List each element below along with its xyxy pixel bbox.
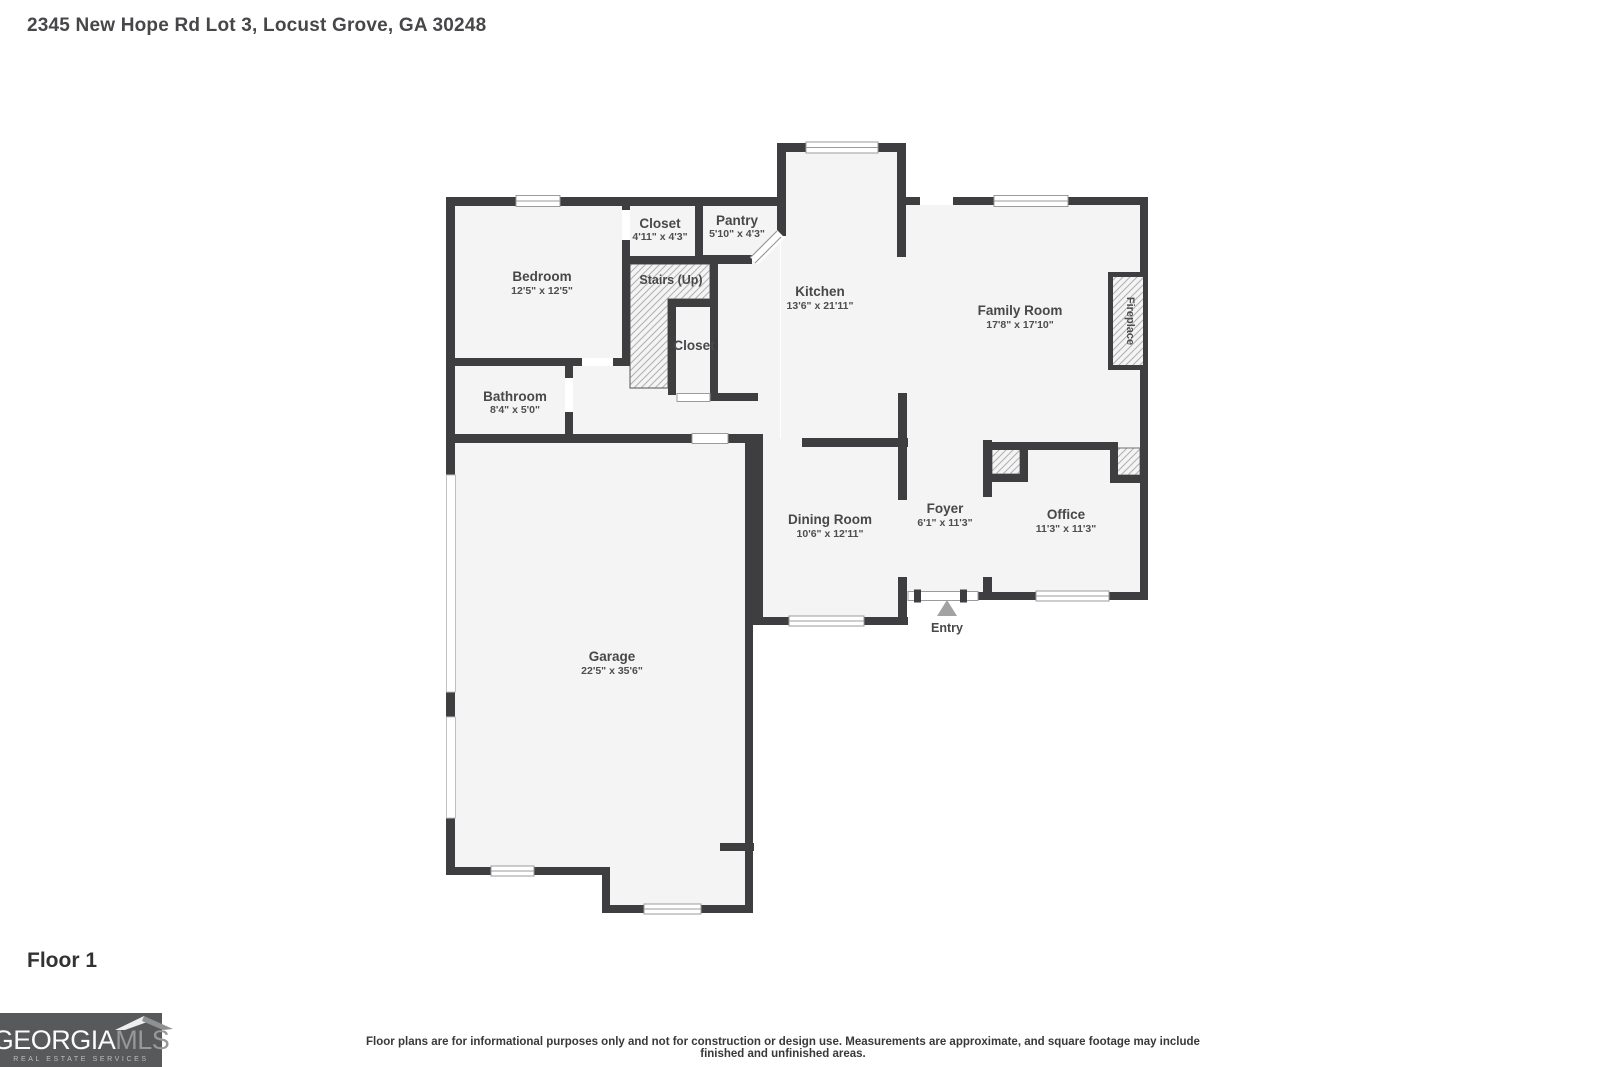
foyer-closet-hatch <box>992 448 1020 474</box>
closet-top-label: Closet <box>639 216 681 231</box>
office-label: Office <box>1047 507 1086 522</box>
dining-room-label: Dining Room <box>788 512 872 527</box>
logo-text-georgia: GEORGIA <box>0 1025 115 1055</box>
roof-icon <box>115 1016 173 1030</box>
bedroom-dims: 12'5" x 12'5" <box>511 285 573 297</box>
pantry-label: Pantry <box>716 213 759 228</box>
family-room-label: Family Room <box>978 303 1063 318</box>
closet-top-dims: 4'11" x 4'3" <box>632 231 687 243</box>
floor-plan-page: 2345 New Hope Rd Lot 3, Locust Grove, GA… <box>0 0 1600 1067</box>
closet-door-sill <box>677 394 710 402</box>
pantry-dims: 5'10" x 4'3" <box>709 228 765 240</box>
dining-window <box>789 616 864 626</box>
family-room-window <box>994 196 1068 207</box>
garage-door-opening-lower <box>447 717 456 818</box>
georgia-mls-logo: GEORGIAMLS REAL ESTATE SERVICES <box>0 1013 162 1067</box>
hall-garage-door-sill <box>692 434 728 444</box>
office-window <box>1036 591 1109 601</box>
garage-dims: 22'5" x 35'6" <box>581 665 643 677</box>
bathroom-label: Bathroom <box>483 389 547 404</box>
foyer-label: Foyer <box>927 501 965 516</box>
garage-door-opening-upper <box>447 475 456 692</box>
garage-label: Garage <box>589 649 636 664</box>
kitchen-window <box>806 142 878 153</box>
stairs-label: Stairs (Up) <box>639 273 702 287</box>
family-room-dims: 17'8" x 17'10" <box>986 319 1054 331</box>
foyer-dims: 6'1" x 11'3" <box>917 517 972 529</box>
entry-label: Entry <box>931 621 963 635</box>
entry-arrow-icon <box>937 600 957 616</box>
bathroom-dims: 8'4" x 5'0" <box>490 404 540 416</box>
bedroom-window <box>516 196 560 207</box>
garage-window-right <box>644 904 701 914</box>
kitchen-dims: 13'6" x 21'11" <box>787 300 854 312</box>
logo-tagline: REAL ESTATE SERVICES <box>13 1056 148 1063</box>
fireplace-label: Fireplace <box>1124 297 1136 345</box>
floor-plan-drawing: Bedroom 12'5" x 12'5" Closet 4'11" x 4'3… <box>0 0 1600 1067</box>
bedroom-label: Bedroom <box>512 269 571 284</box>
entry-door <box>908 590 978 603</box>
closet-lower-label: Closet <box>673 338 715 353</box>
dining-room-dims: 10'6" x 12'11" <box>797 528 864 540</box>
logo-wordmark: GEORGIAMLS <box>0 1027 169 1054</box>
garage-window-left <box>491 866 534 876</box>
floor-number-label: Floor 1 <box>27 949 97 973</box>
kitchen-label: Kitchen <box>795 284 845 299</box>
disclaimer-text: Floor plans are for informational purpos… <box>352 1036 1214 1060</box>
office-dims: 11'3" x 11'3" <box>1036 523 1097 535</box>
